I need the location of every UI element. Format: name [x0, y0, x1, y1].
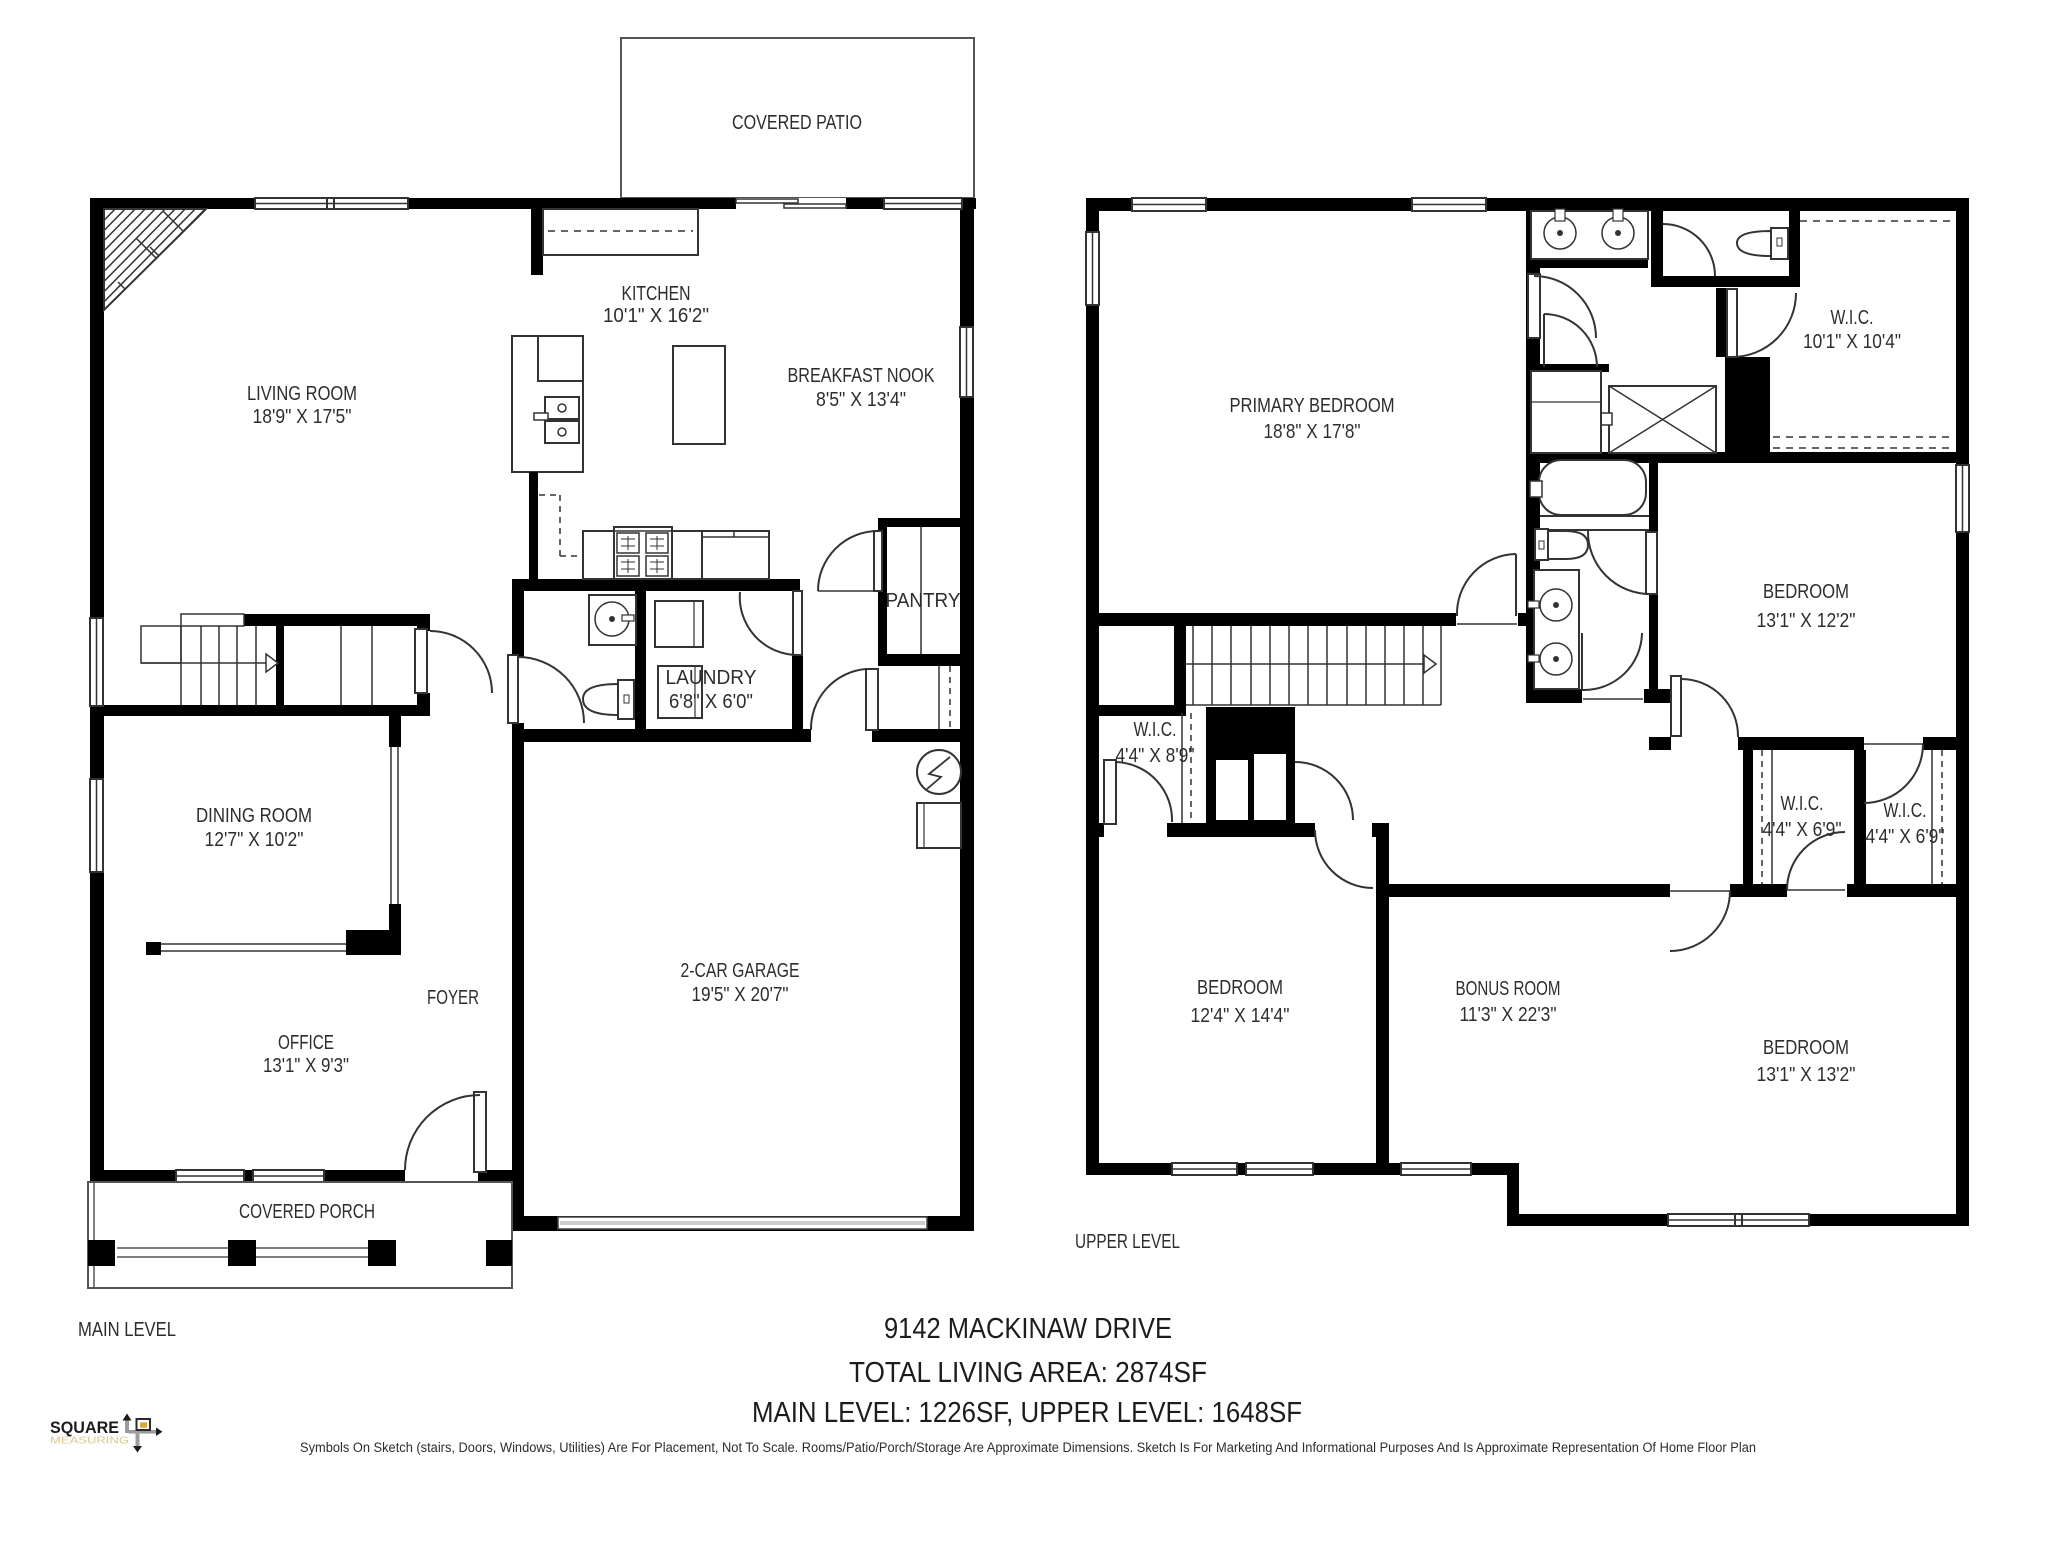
- svg-text:BEDROOM: BEDROOM: [1763, 581, 1849, 603]
- svg-text:BEDROOM: BEDROOM: [1763, 1037, 1849, 1059]
- svg-text:18'8" X 17'8": 18'8" X 17'8": [1264, 421, 1361, 443]
- svg-text:4'4" X 6'9": 4'4" X 6'9": [1866, 826, 1945, 848]
- svg-text:13'1" X 12'2": 13'1" X 12'2": [1757, 610, 1856, 632]
- svg-text:9142 MACKINAW DRIVE: 9142 MACKINAW DRIVE: [884, 1313, 1172, 1345]
- svg-text:4'4" X 8'9": 4'4" X 8'9": [1116, 745, 1195, 767]
- svg-text:2-CAR GARAGE: 2-CAR GARAGE: [681, 960, 800, 982]
- svg-text:PRIMARY BEDROOM: PRIMARY BEDROOM: [1230, 395, 1395, 417]
- svg-text:KITCHEN: KITCHEN: [622, 283, 691, 305]
- svg-text:4'4" X 6'9": 4'4" X 6'9": [1763, 819, 1842, 841]
- svg-text:BEDROOM: BEDROOM: [1197, 977, 1283, 999]
- svg-text:MAIN LEVEL: MAIN LEVEL: [78, 1319, 176, 1341]
- svg-text:W.I.C.: W.I.C.: [1831, 307, 1874, 329]
- svg-text:6'8" X 6'0": 6'8" X 6'0": [669, 691, 753, 713]
- svg-text:PANTRY: PANTRY: [886, 590, 961, 612]
- svg-text:MAIN LEVEL: 1226SF, UPPER LEVE: MAIN LEVEL: 1226SF, UPPER LEVEL: 1648SF: [752, 1397, 1302, 1429]
- svg-text:W.I.C.: W.I.C.: [1884, 800, 1927, 822]
- svg-text:COVERED PORCH: COVERED PORCH: [239, 1201, 375, 1223]
- svg-text:OFFICE: OFFICE: [278, 1032, 334, 1054]
- svg-text:12'7" X 10'2": 12'7" X 10'2": [205, 829, 304, 851]
- svg-text:LIVING ROOM: LIVING ROOM: [247, 383, 357, 405]
- svg-text:BONUS ROOM: BONUS ROOM: [1456, 978, 1561, 1000]
- svg-text:W.I.C.: W.I.C.: [1781, 793, 1824, 815]
- svg-text:12'4" X 14'4": 12'4" X 14'4": [1191, 1005, 1290, 1027]
- svg-text:TOTAL LIVING AREA: 2874SF: TOTAL LIVING AREA: 2874SF: [849, 1357, 1207, 1389]
- svg-text:LAUNDRY: LAUNDRY: [666, 667, 757, 689]
- svg-text:UPPER LEVEL: UPPER LEVEL: [1075, 1231, 1180, 1253]
- svg-text:BREAKFAST NOOK: BREAKFAST NOOK: [788, 365, 936, 387]
- svg-text:18'9" X 17'5": 18'9" X 17'5": [253, 406, 352, 428]
- svg-text:Symbols On Sketch (stairs, Doo: Symbols On Sketch (stairs, Doors, Window…: [300, 1440, 1756, 1455]
- svg-text:11'3" X 22'3": 11'3" X 22'3": [1460, 1004, 1557, 1026]
- svg-text:19'5" X 20'7": 19'5" X 20'7": [692, 984, 789, 1006]
- svg-text:13'1" X 9'3": 13'1" X 9'3": [263, 1055, 349, 1077]
- svg-text:FOYER: FOYER: [427, 987, 479, 1009]
- svg-text:8'5" X 13'4": 8'5" X 13'4": [816, 389, 906, 411]
- svg-text:MEASURING: MEASURING: [50, 1435, 129, 1447]
- svg-text:10'1" X 16'2": 10'1" X 16'2": [603, 305, 709, 327]
- svg-text:W.I.C.: W.I.C.: [1134, 719, 1177, 741]
- svg-text:10'1" X 10'4": 10'1" X 10'4": [1803, 331, 1901, 353]
- svg-text:13'1" X 13'2": 13'1" X 13'2": [1757, 1064, 1856, 1086]
- svg-text:DINING ROOM: DINING ROOM: [196, 805, 312, 827]
- svg-text:COVERED PATIO: COVERED PATIO: [732, 112, 862, 134]
